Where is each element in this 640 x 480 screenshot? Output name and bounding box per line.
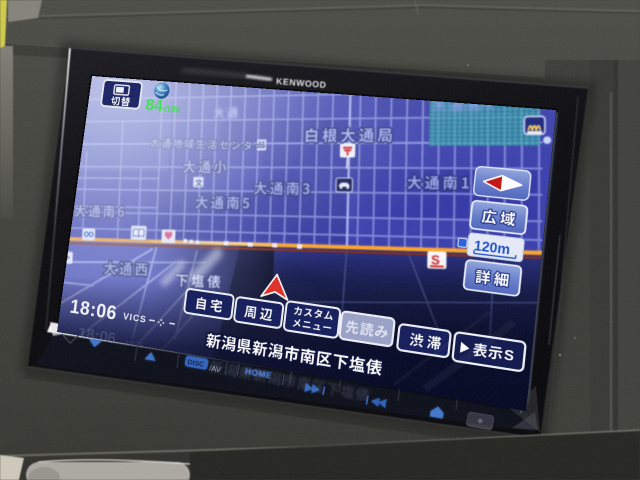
svg-text:/100: /100 <box>163 103 181 115</box>
svg-text:84: 84 <box>144 96 164 116</box>
